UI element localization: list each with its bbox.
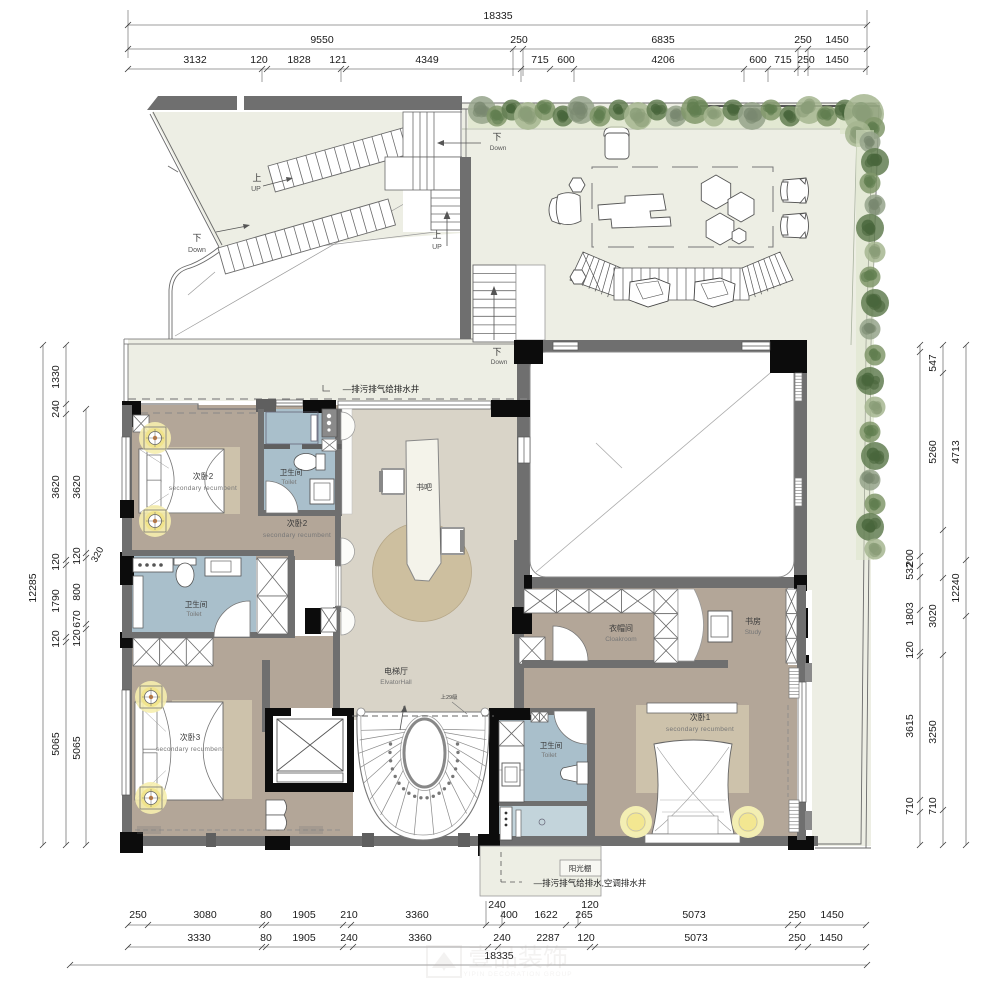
svg-text:12240: 12240 xyxy=(950,573,962,602)
svg-text:240: 240 xyxy=(488,899,506,911)
svg-text:1803: 1803 xyxy=(904,602,916,626)
svg-text:3615: 3615 xyxy=(904,714,916,738)
svg-text:上29级: 上29级 xyxy=(440,693,458,701)
svg-text:80: 80 xyxy=(260,909,272,921)
svg-text:上: 上 xyxy=(432,230,441,240)
svg-text:5065: 5065 xyxy=(71,736,83,760)
svg-text:卫生间: 卫生间 xyxy=(185,599,208,609)
svg-text:Down: Down xyxy=(188,247,206,254)
svg-text:4349: 4349 xyxy=(415,54,439,66)
svg-text:5260: 5260 xyxy=(927,440,939,464)
svg-text:1330: 1330 xyxy=(50,365,62,389)
svg-text:Down: Down xyxy=(491,359,508,366)
svg-text:书吧: 书吧 xyxy=(416,482,432,492)
svg-text:书房: 书房 xyxy=(745,616,761,626)
svg-text:600: 600 xyxy=(557,54,575,66)
svg-text:120: 120 xyxy=(250,54,268,66)
svg-text:次卧1: 次卧1 xyxy=(690,712,711,722)
svg-text:4206: 4206 xyxy=(651,54,675,66)
svg-text:1450: 1450 xyxy=(819,932,843,944)
svg-text:2287: 2287 xyxy=(536,932,560,944)
svg-text:衣帽间: 衣帽间 xyxy=(609,623,633,633)
svg-text:5073: 5073 xyxy=(682,909,706,921)
svg-text:电梯厅: 电梯厅 xyxy=(384,666,408,676)
svg-text:250: 250 xyxy=(794,34,812,46)
svg-text:5073: 5073 xyxy=(684,932,708,944)
svg-text:3360: 3360 xyxy=(405,909,429,921)
svg-text:532: 532 xyxy=(904,562,916,580)
svg-text:120: 120 xyxy=(71,547,83,565)
svg-text:600: 600 xyxy=(749,54,767,66)
svg-text:710: 710 xyxy=(904,797,916,815)
svg-text:5065: 5065 xyxy=(50,732,62,756)
svg-text:Toilet: Toilet xyxy=(281,479,296,486)
svg-text:—排污排气给排水,空调排水井: —排污排气给排水,空调排水井 xyxy=(534,878,647,888)
svg-text:250: 250 xyxy=(797,54,815,66)
svg-text:18335: 18335 xyxy=(483,10,512,22)
svg-text:YIPIN DECORATION GROUP: YIPIN DECORATION GROUP xyxy=(463,971,572,978)
svg-text:670: 670 xyxy=(71,610,83,628)
svg-text:3620: 3620 xyxy=(71,475,83,499)
svg-text:710: 710 xyxy=(927,797,939,815)
svg-text:下: 下 xyxy=(492,132,501,142)
svg-text:Study: Study xyxy=(745,629,762,636)
svg-text:上: 上 xyxy=(252,173,261,183)
svg-text:次卧3: 次卧3 xyxy=(180,732,201,742)
svg-text:3620: 3620 xyxy=(50,475,62,499)
svg-text:Toilet: Toilet xyxy=(541,752,556,759)
svg-text:120: 120 xyxy=(581,899,599,911)
svg-text:次卧2: 次卧2 xyxy=(193,471,214,481)
svg-text:4713: 4713 xyxy=(950,440,962,464)
svg-text:1905: 1905 xyxy=(292,909,316,921)
svg-text:1790: 1790 xyxy=(50,589,62,613)
svg-text:6835: 6835 xyxy=(651,34,675,46)
svg-text:UP: UP xyxy=(251,186,261,193)
svg-text:UP: UP xyxy=(432,244,442,251)
svg-text:secondary recumbent: secondary recumbent xyxy=(263,532,331,539)
svg-text:12285: 12285 xyxy=(27,573,39,602)
svg-text:1450: 1450 xyxy=(825,34,849,46)
svg-text:1450: 1450 xyxy=(820,909,844,921)
svg-text:1450: 1450 xyxy=(825,54,849,66)
svg-text:ElvatorHall: ElvatorHall xyxy=(380,679,412,686)
svg-text:120: 120 xyxy=(71,629,83,647)
svg-text:3132: 3132 xyxy=(183,54,207,66)
svg-text:secondary recumbent: secondary recumbent xyxy=(156,746,224,753)
svg-text:715: 715 xyxy=(531,54,549,66)
svg-text:Down: Down xyxy=(490,145,507,152)
svg-text:250: 250 xyxy=(788,932,806,944)
svg-text:80: 80 xyxy=(260,932,272,944)
svg-text:阳光棚: 阳光棚 xyxy=(569,863,592,873)
svg-text:240: 240 xyxy=(340,932,358,944)
svg-text:121: 121 xyxy=(329,54,347,66)
svg-text:下: 下 xyxy=(492,347,501,357)
svg-text:壹品装饰: 壹品装饰 xyxy=(468,944,568,972)
svg-text:250: 250 xyxy=(510,34,528,46)
svg-text:secondary recumbent: secondary recumbent xyxy=(666,726,734,733)
svg-text:800: 800 xyxy=(71,583,83,601)
svg-text:120: 120 xyxy=(50,630,62,648)
svg-text:3080: 3080 xyxy=(193,909,217,921)
svg-text:Toilet: Toilet xyxy=(186,611,201,618)
svg-text:715: 715 xyxy=(774,54,792,66)
svg-text:120: 120 xyxy=(577,932,595,944)
svg-text:—排污排气给排水井: —排污排气给排水井 xyxy=(343,384,420,394)
svg-text:卫生间: 卫生间 xyxy=(540,740,563,750)
svg-text:1905: 1905 xyxy=(292,932,316,944)
svg-text:3020: 3020 xyxy=(927,604,939,628)
svg-text:3330: 3330 xyxy=(187,932,211,944)
svg-text:240: 240 xyxy=(50,400,62,418)
svg-text:Cloakroom: Cloakroom xyxy=(605,636,636,643)
svg-text:210: 210 xyxy=(340,909,358,921)
svg-text:9550: 9550 xyxy=(310,34,334,46)
svg-text:120: 120 xyxy=(50,553,62,571)
svg-text:240: 240 xyxy=(493,932,511,944)
svg-text:下: 下 xyxy=(192,233,201,243)
svg-text:3250: 3250 xyxy=(927,720,939,744)
svg-text:3360: 3360 xyxy=(408,932,432,944)
svg-text:secondary recumbent: secondary recumbent xyxy=(169,485,237,492)
svg-text:1828: 1828 xyxy=(287,54,311,66)
svg-text:250: 250 xyxy=(129,909,147,921)
svg-text:547: 547 xyxy=(927,354,939,372)
svg-text:120: 120 xyxy=(904,641,916,659)
svg-text:250: 250 xyxy=(788,909,806,921)
svg-text:卫生间: 卫生间 xyxy=(280,467,303,477)
svg-text:次卧2: 次卧2 xyxy=(287,518,308,528)
svg-text:1622: 1622 xyxy=(534,909,558,921)
